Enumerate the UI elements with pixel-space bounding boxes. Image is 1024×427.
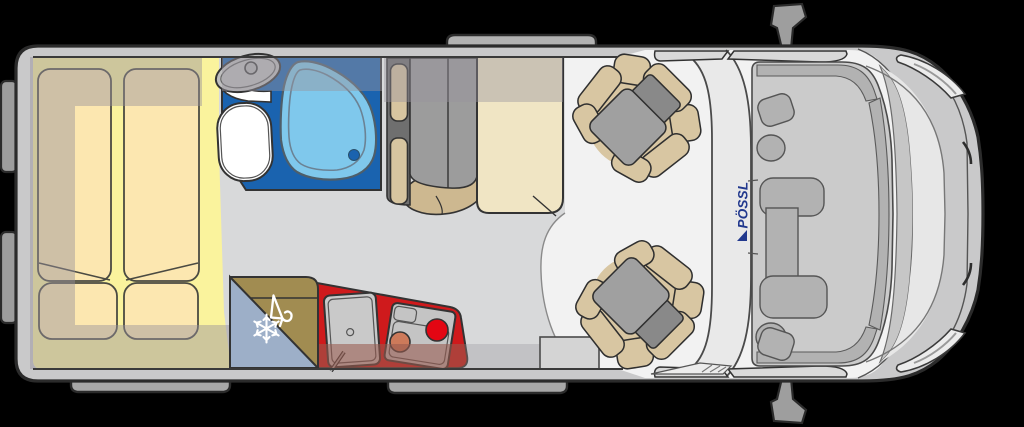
svg-text:PÖSSL: PÖSSL — [736, 182, 751, 229]
